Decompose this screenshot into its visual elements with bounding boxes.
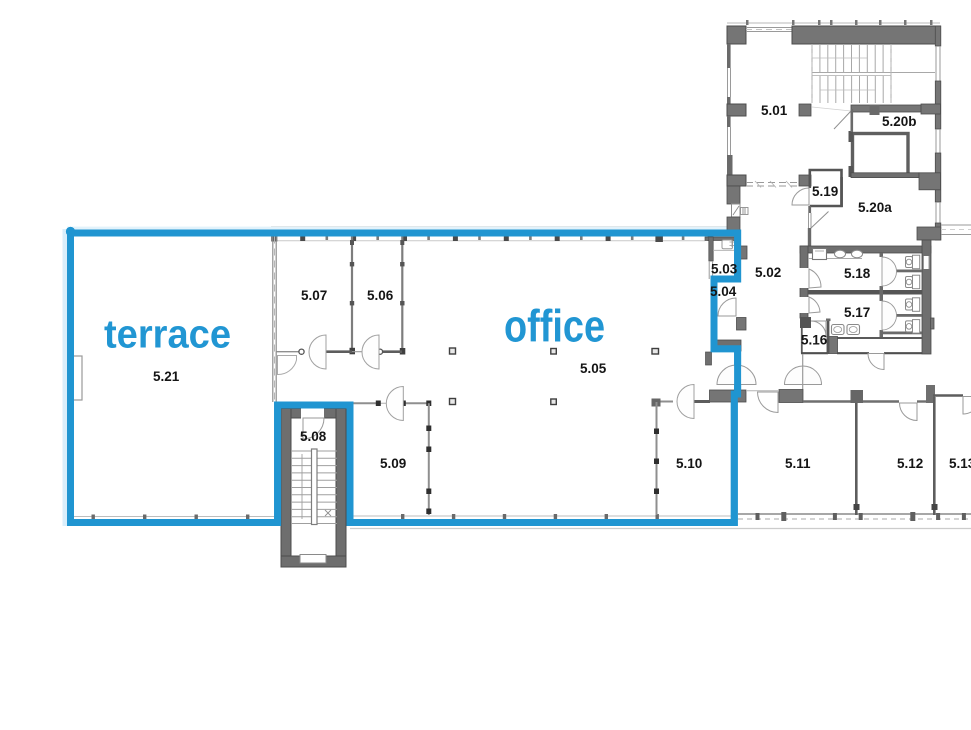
svg-text:5.18: 5.18 [844, 266, 871, 281]
svg-text:5.06: 5.06 [367, 288, 394, 303]
svg-text:5.05: 5.05 [580, 361, 607, 376]
svg-text:5.02: 5.02 [755, 265, 781, 280]
svg-text:5.03: 5.03 [711, 262, 738, 277]
svg-text:5.07: 5.07 [301, 288, 327, 303]
svg-text:5.01: 5.01 [761, 103, 788, 118]
svg-text:5.19: 5.19 [812, 184, 838, 199]
svg-text:office: office [504, 301, 605, 352]
svg-text:5.20b: 5.20b [882, 114, 917, 129]
svg-text:5.17: 5.17 [844, 305, 870, 320]
svg-text:5.10: 5.10 [676, 456, 702, 471]
svg-text:5.12: 5.12 [897, 456, 923, 471]
svg-text:5.08: 5.08 [300, 429, 327, 444]
svg-text:5.13: 5.13 [949, 456, 971, 471]
svg-text:5.20a: 5.20a [858, 200, 892, 215]
svg-text:5.04: 5.04 [710, 284, 737, 299]
svg-text:5.11: 5.11 [785, 456, 811, 471]
svg-text:5.21: 5.21 [153, 369, 180, 384]
svg-text:5.16: 5.16 [801, 333, 828, 348]
svg-text:5.09: 5.09 [380, 456, 406, 471]
svg-text:terrace: terrace [104, 313, 231, 357]
